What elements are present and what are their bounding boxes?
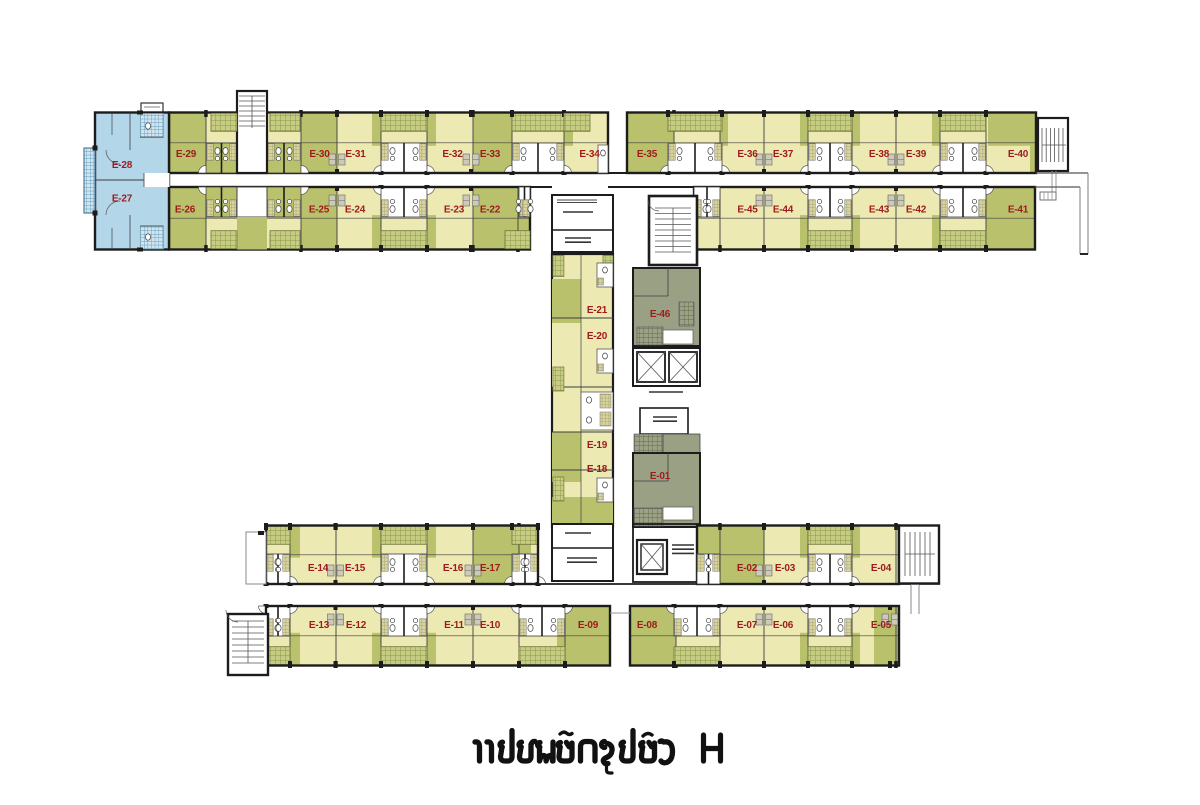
- svg-text:E-28: E-28: [112, 160, 133, 171]
- svg-text:E-14: E-14: [308, 563, 329, 574]
- svg-text:E-09: E-09: [578, 620, 599, 631]
- svg-text:E-01: E-01: [650, 471, 671, 482]
- svg-text:E-40: E-40: [1008, 149, 1029, 160]
- svg-text:E-12: E-12: [346, 620, 367, 631]
- svg-text:E-43: E-43: [869, 205, 890, 216]
- svg-text:E-39: E-39: [906, 149, 927, 160]
- svg-text:E-44: E-44: [773, 205, 794, 216]
- svg-text:E-25: E-25: [309, 205, 330, 216]
- svg-text:E-08: E-08: [637, 620, 658, 631]
- svg-text:E-30: E-30: [309, 149, 330, 160]
- svg-text:E-24: E-24: [345, 205, 366, 216]
- svg-text:E-31: E-31: [345, 149, 366, 160]
- svg-text:E-02: E-02: [737, 563, 758, 574]
- svg-text:E-17: E-17: [480, 563, 501, 574]
- svg-text:E-46: E-46: [650, 309, 671, 320]
- svg-text:E-41: E-41: [1008, 205, 1029, 216]
- svg-text:E-04: E-04: [871, 563, 892, 574]
- svg-text:E-15: E-15: [345, 563, 366, 574]
- svg-text:E-22: E-22: [480, 205, 501, 216]
- svg-text:E-20: E-20: [587, 331, 608, 342]
- svg-text:E-10: E-10: [480, 620, 501, 631]
- svg-text:E-33: E-33: [480, 149, 501, 160]
- svg-text:E-21: E-21: [587, 305, 608, 316]
- svg-text:E-07: E-07: [737, 620, 758, 631]
- svg-text:E-35: E-35: [637, 149, 658, 160]
- svg-text:E-06: E-06: [773, 620, 794, 631]
- svg-text:E-11: E-11: [444, 620, 464, 631]
- svg-text:E-13: E-13: [309, 620, 330, 631]
- svg-text:E-37: E-37: [773, 149, 794, 160]
- svg-text:E-19: E-19: [587, 440, 608, 451]
- svg-text:E-36: E-36: [737, 149, 758, 160]
- svg-text:E-16: E-16: [443, 563, 464, 574]
- svg-text:E-34: E-34: [579, 149, 600, 160]
- svg-text:E-42: E-42: [906, 205, 927, 216]
- svg-text:E-26: E-26: [175, 205, 196, 216]
- svg-text:E-29: E-29: [176, 149, 197, 160]
- svg-text:E-03: E-03: [775, 563, 796, 574]
- svg-text:E-18: E-18: [587, 464, 608, 475]
- svg-text:E-45: E-45: [737, 205, 758, 216]
- svg-text:E-32: E-32: [442, 149, 463, 160]
- svg-text:E-23: E-23: [444, 205, 465, 216]
- svg-text:E-05: E-05: [871, 620, 892, 631]
- svg-text:E-38: E-38: [869, 149, 890, 160]
- svg-text:E-27: E-27: [112, 194, 133, 205]
